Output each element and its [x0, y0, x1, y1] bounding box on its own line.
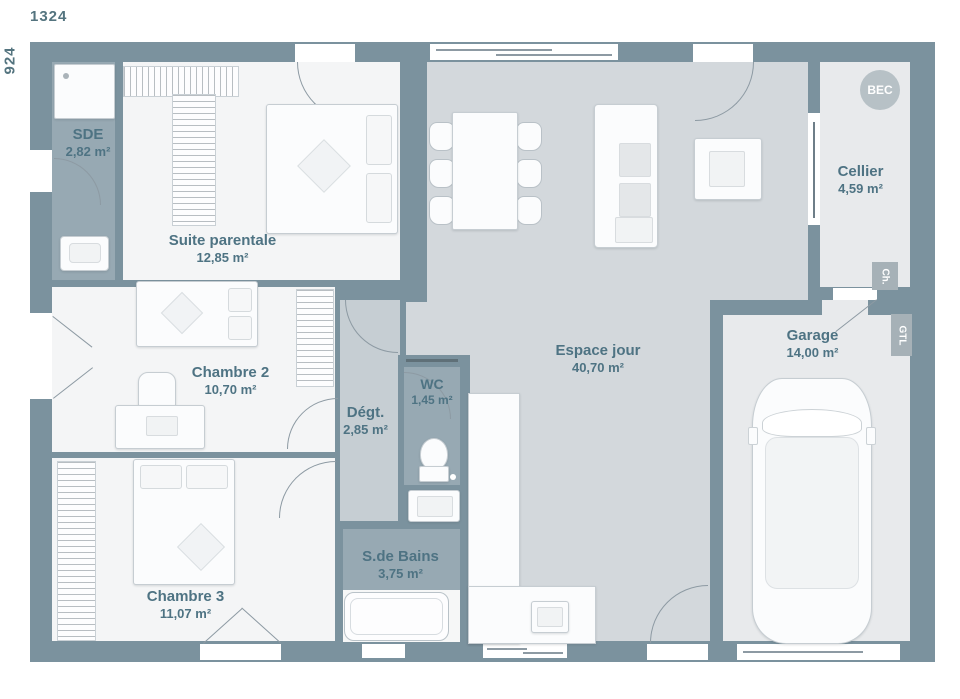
wc-sink-icon	[408, 490, 460, 522]
room-area: 14,00 m²	[750, 345, 875, 361]
room-label-wc: WC 1,45 m²	[402, 376, 462, 408]
double-bed-icon	[133, 459, 235, 585]
room-area: 3,75 m²	[338, 566, 463, 582]
room-label-degagement: Dégt. 2,85 m²	[318, 404, 413, 438]
floor-plan: 1324 924	[0, 0, 960, 699]
wardrobe-icon	[172, 94, 216, 226]
car-mirror	[866, 427, 876, 445]
desk-item	[146, 416, 178, 436]
pillow	[140, 465, 182, 489]
dining-chair-icon	[516, 122, 542, 151]
sofa-cushion	[619, 143, 651, 177]
living-top-door	[693, 44, 753, 62]
room-name: Chambre 3	[103, 588, 268, 606]
room-label-chambre-2: Chambre 2 10,70 m²	[148, 364, 313, 398]
gtl-badge-text: GTL	[896, 325, 907, 345]
car-roof	[765, 437, 859, 589]
room-name: Dégt.	[318, 404, 413, 422]
toilet-flush-dot	[450, 474, 456, 480]
sofa-cushion	[619, 183, 651, 217]
bathtub-icon	[344, 592, 449, 641]
gtl-badge: GTL	[891, 314, 912, 356]
dimension-top: 1324	[30, 8, 67, 25]
room-label-chambre-3: Chambre 3 11,07 m²	[103, 588, 268, 622]
desk-icon	[115, 405, 205, 449]
degagement-right-wall	[400, 300, 406, 358]
room-name: SDE	[48, 126, 128, 144]
sink-basin	[69, 243, 101, 263]
bed-icon	[136, 281, 258, 347]
pillow	[186, 465, 228, 489]
cushion	[161, 292, 203, 334]
cushion	[177, 523, 225, 571]
sdb-window	[362, 644, 405, 658]
kitchen-sink-icon	[531, 601, 569, 633]
pillow	[228, 288, 252, 312]
window-pane-line	[436, 49, 552, 51]
room-label-sdb: S.de Bains 3,75 m²	[338, 548, 463, 582]
room-label-garage: Garage 14,00 m²	[750, 327, 875, 361]
armchair-cushion	[709, 151, 745, 187]
room-name: Suite parentale	[120, 232, 325, 250]
bec-badge: BEC	[860, 70, 900, 110]
room-name: WC	[402, 376, 462, 393]
toilet-tank	[419, 466, 449, 482]
room-area: 2,85 m²	[318, 422, 413, 438]
sink-basin	[417, 496, 453, 517]
ch-badge-text: Ch.	[879, 268, 890, 284]
room-area: 40,70 m²	[528, 360, 668, 376]
garage-door	[737, 644, 900, 660]
room-name: Cellier	[808, 163, 913, 181]
wc-interior-window	[406, 359, 458, 362]
kitchen-window	[483, 644, 567, 658]
room-area: 11,07 m²	[103, 606, 268, 622]
garage-door-opening-from-cellier	[822, 300, 868, 315]
room-label-cellier: Cellier 4,59 m²	[808, 163, 913, 197]
living-sliding-window	[430, 44, 618, 60]
room-name: Chambre 2	[148, 364, 313, 382]
room-area: 4,59 m²	[808, 181, 913, 197]
room-area: 12,85 m²	[120, 250, 325, 266]
window-pane-line	[523, 652, 563, 654]
armchair-icon	[694, 138, 762, 200]
car-icon	[752, 378, 872, 644]
sde-sink-icon	[60, 236, 109, 271]
cushion	[297, 139, 351, 193]
car-windshield	[762, 409, 862, 437]
dining-chair-icon	[516, 196, 542, 225]
ch-badge: Ch.	[872, 262, 898, 290]
cellier-door	[833, 288, 877, 300]
suite-entry-door	[295, 44, 355, 62]
entry-door	[647, 644, 708, 660]
sofa-chaise	[615, 217, 653, 243]
room-area: 10,70 m²	[148, 382, 313, 398]
dining-chair-icon	[516, 159, 542, 188]
sofa-icon	[594, 104, 658, 248]
room-label-sde: SDE 2,82 m²	[48, 126, 128, 160]
car-mirror	[748, 427, 758, 445]
window-pane-line	[496, 54, 612, 56]
double-bed-icon	[266, 104, 398, 234]
room-label-suite-parentale: Suite parentale 12,85 m²	[120, 232, 325, 266]
pillow	[366, 173, 392, 223]
room-area: 1,45 m²	[402, 393, 462, 408]
chambre-3-window	[200, 644, 281, 660]
pillow	[366, 115, 392, 165]
wardrobe-icon	[57, 461, 96, 641]
wardrobe-icon	[123, 66, 239, 97]
room-name: Garage	[750, 327, 875, 345]
shower-icon	[54, 64, 115, 119]
dimension-left: 924	[2, 46, 19, 74]
pillow	[228, 316, 252, 340]
dining-table-icon	[452, 112, 518, 230]
room-area: 2,82 m²	[48, 144, 128, 160]
room-name: Espace jour	[528, 342, 668, 360]
chambre-2-window	[30, 313, 52, 399]
garage-door-line	[743, 651, 863, 653]
sink-basin	[537, 607, 563, 627]
window-pane-line	[487, 648, 527, 650]
room-label-espace-jour: Espace jour 40,70 m²	[528, 342, 668, 376]
room-name: S.de Bains	[338, 548, 463, 566]
shower-drain-icon	[63, 73, 69, 79]
